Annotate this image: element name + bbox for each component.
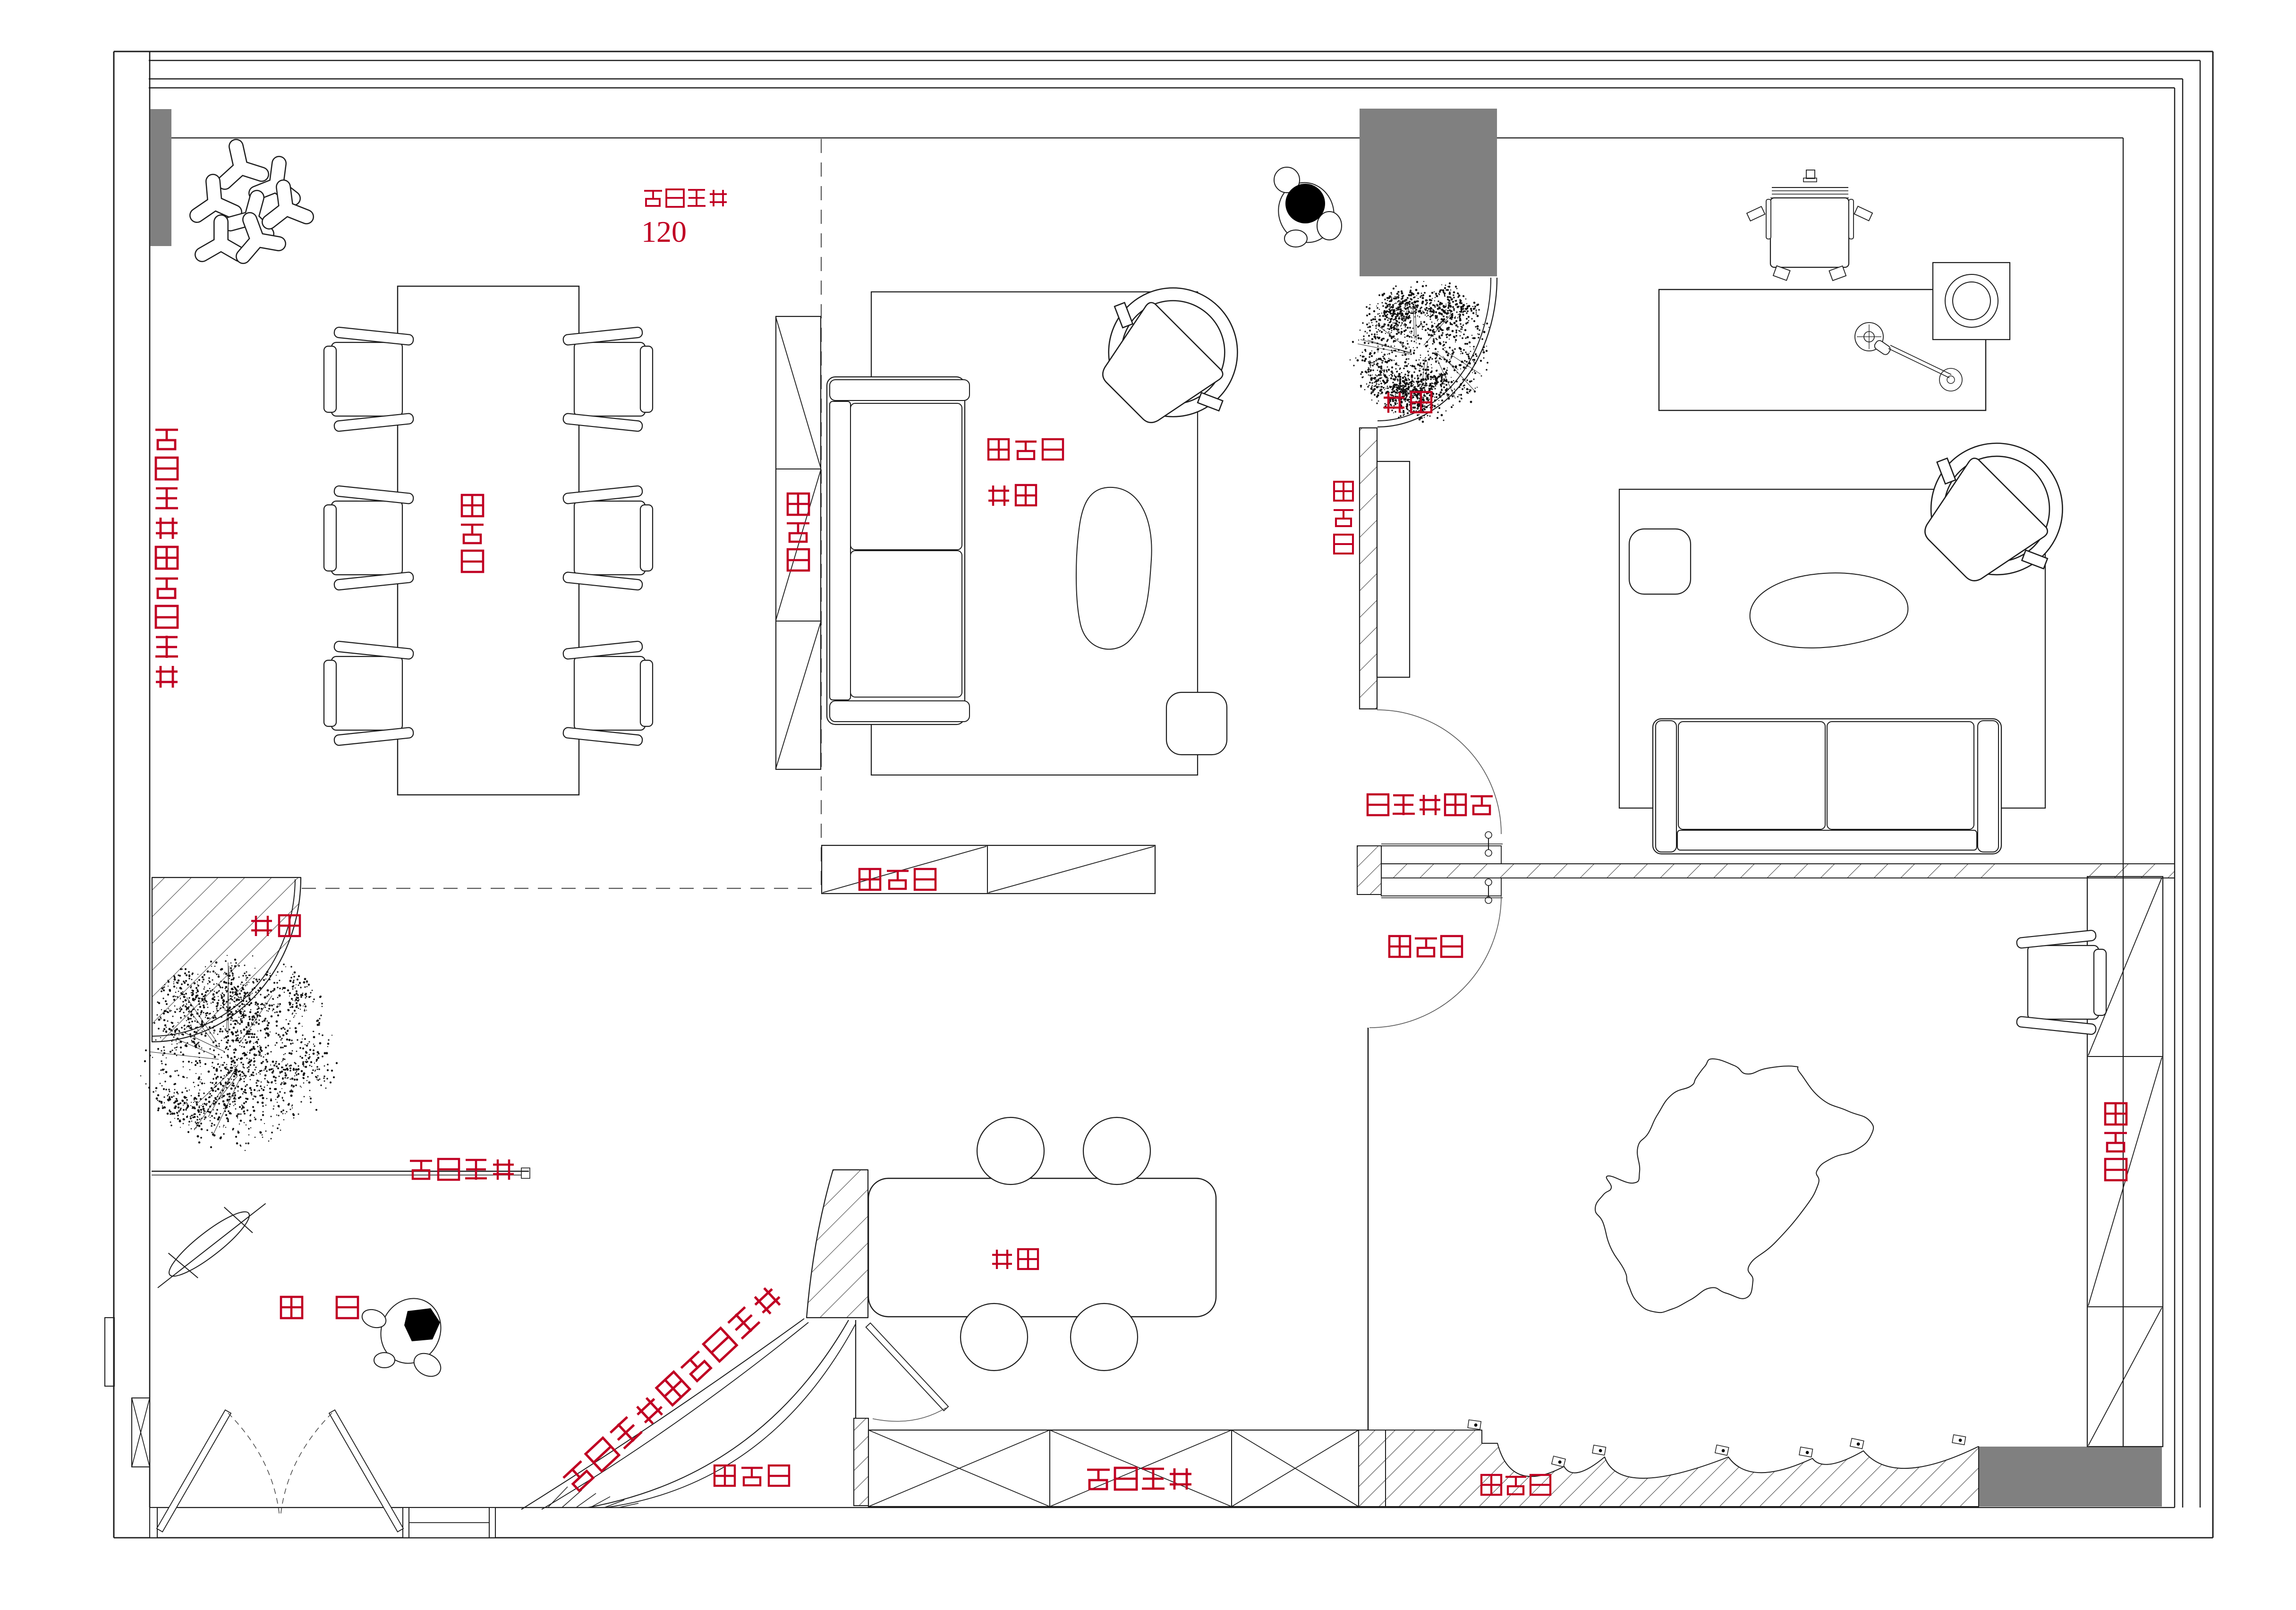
svg-text:120: 120 bbox=[641, 215, 687, 248]
